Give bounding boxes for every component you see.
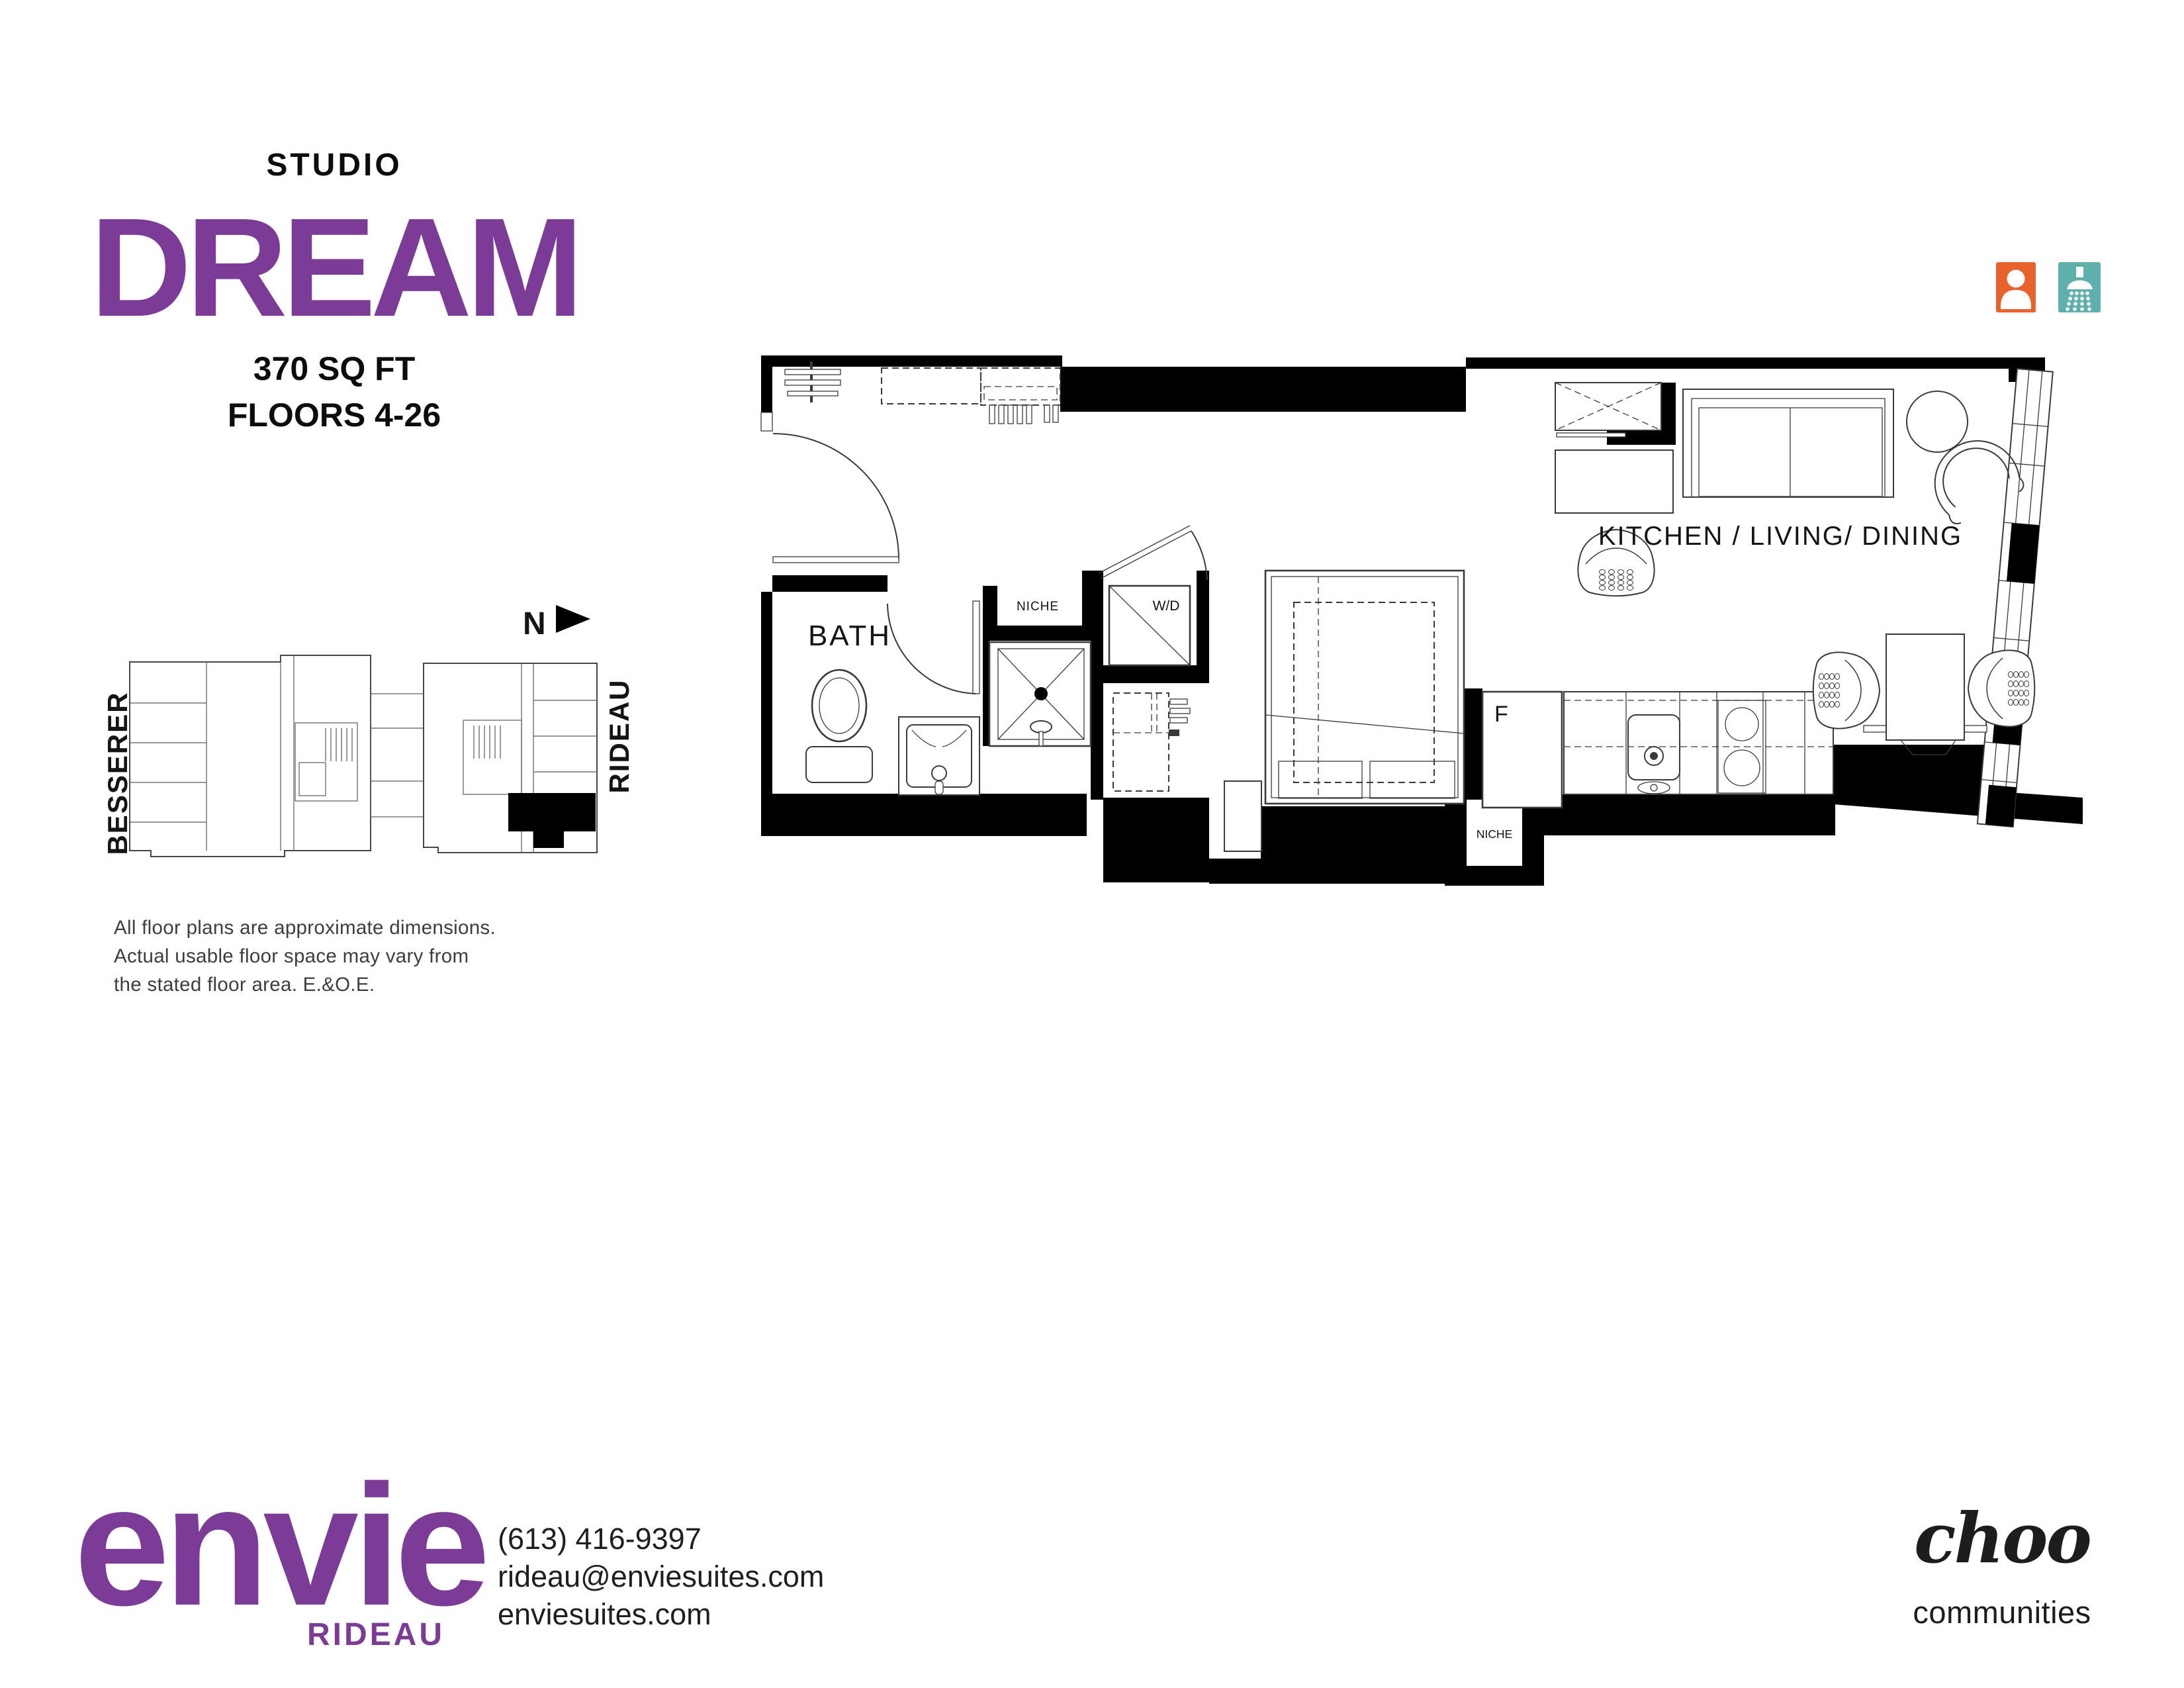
murphy-bed	[1265, 571, 1464, 804]
building-key-plan: N BESSERER RIDEAU	[79, 583, 675, 874]
unit-floors-label: FLOORS 4-26	[0, 396, 668, 434]
developer-logo-choo: choo	[1883, 1497, 2121, 1579]
round-side-table	[1907, 391, 1968, 452]
brand-location-label: RIDEAU	[74, 1617, 445, 1653]
bedside-table	[1224, 781, 1261, 851]
desk	[1555, 450, 1673, 513]
window-wall	[1978, 369, 2053, 827]
entry-door	[761, 412, 899, 563]
contact-block: (613) 416-9397 rideau@enviesuites.com en…	[498, 1520, 824, 1633]
bathroom-vanity-sink	[899, 717, 979, 795]
unit-name-title: DREAM	[0, 197, 668, 338]
north-arrow: N	[523, 605, 590, 641]
contact-email: rideau@enviesuites.com	[498, 1558, 824, 1595]
brand-logo-envie: envie	[74, 1460, 484, 1632]
unit-area-label: 370 SQ FT	[0, 350, 668, 388]
shower-icon	[2058, 262, 2101, 312]
entry-upper-cabinets	[882, 368, 1060, 424]
shower-badge	[2058, 262, 2101, 312]
kitchen-living-dining-label: KITCHEN / LIVING/ DINING	[1598, 522, 1962, 551]
niche-upper-label: NICHE	[1017, 600, 1059, 614]
street-label-besserer: BESSERER	[102, 691, 133, 855]
sofa	[1683, 389, 1893, 497]
occupant-badge	[1996, 262, 2036, 312]
key-plan-left-wing	[130, 655, 371, 857]
street-label-rideau: RIDEAU	[604, 679, 635, 793]
bath-label: BATH	[808, 620, 891, 652]
disclaimer-line-3: the stated floor area. E.&O.E.	[114, 970, 496, 999]
storage-closet	[1555, 383, 1661, 437]
bath-door	[887, 601, 979, 694]
toilet	[806, 670, 872, 782]
washer-dryer	[1099, 526, 1207, 665]
dining-chair-left	[1813, 652, 1880, 728]
kitchen-counter	[1564, 692, 1833, 794]
contact-phone: (613) 416-9397	[498, 1520, 824, 1558]
wd-label: W/D	[1153, 598, 1180, 614]
linen-cabinet	[1113, 693, 1190, 791]
entry-coat-hooks	[785, 361, 841, 402]
north-label: N	[523, 606, 546, 641]
niche-lower-label: NICHE	[1477, 827, 1512, 841]
contact-website: enviesuites.com	[498, 1595, 824, 1633]
floorplan-sheet: { "header": { "unit_type": "STUDIO", "un…	[0, 0, 2184, 1688]
shower	[989, 642, 1091, 746]
disclaimer-line-1: All floor plans are approximate dimensio…	[114, 914, 496, 942]
fridge-label: F	[1494, 702, 1508, 727]
key-plan-core-link	[371, 694, 424, 817]
unit-type-label: STUDIO	[0, 147, 668, 183]
disclaimer-text: All floor plans are approximate dimensio…	[114, 914, 496, 999]
disclaimer-line-2: Actual usable floor space may vary from	[114, 942, 496, 970]
dining-table	[1886, 634, 1964, 740]
person-icon	[1996, 262, 2036, 312]
dining-chair-right	[1968, 650, 2034, 726]
floor-plan: BATH NICHE W/D	[754, 344, 2091, 914]
developer-logo-communities: communities	[1878, 1594, 2126, 1630]
